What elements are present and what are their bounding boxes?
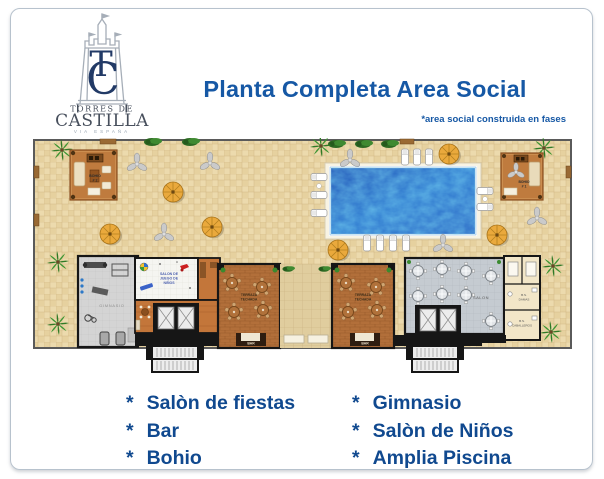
bullet: * xyxy=(126,392,134,415)
feature-item: * Amplia Piscina xyxy=(352,445,513,473)
feature-item: * Bohio xyxy=(126,445,295,473)
feature-label: Salòn de fiestas xyxy=(147,392,295,415)
logo-line3: VIA ESPAÑA xyxy=(74,128,130,134)
damas-label-2: DAMAS xyxy=(519,297,530,301)
bohio1-label: BOHIO xyxy=(518,180,529,184)
bar-right-label: BAR xyxy=(361,342,369,346)
elevator-core-right xyxy=(415,305,461,335)
bullet: * xyxy=(126,420,134,443)
terraza-right-label-2: TECHADA xyxy=(355,297,372,301)
terraza-left-label-1: TERRAZA xyxy=(241,293,258,297)
feature-list-right: * Gimnasio * Salòn de Niños * Amplia Pis… xyxy=(352,390,513,473)
feature-label: Bar xyxy=(147,420,180,443)
logo-monogram-t: T xyxy=(89,45,112,85)
logo: C T TORRES DE CASTILLA VIA ESPAÑA xyxy=(40,12,165,136)
bohio-1: BOHIO # 1 xyxy=(501,153,543,200)
gym-room: GIMNASIO xyxy=(78,256,138,347)
walkway xyxy=(280,264,332,348)
feature-label: Gimnasio xyxy=(373,392,462,415)
gym-label: GIMNASIO xyxy=(99,304,124,308)
feature-item: * Salòn de fiestas xyxy=(126,390,295,418)
pantry-room xyxy=(198,258,220,300)
kids-room: SALON DE JUEGO DE NIÑOS xyxy=(135,258,198,300)
feature-label: Bohio xyxy=(147,447,202,470)
caballeros-label-2: CABALLEROS xyxy=(512,323,532,327)
bullet: * xyxy=(126,447,134,470)
bohio2-label: BOHIO xyxy=(89,174,101,178)
feature-item: * Gimnasio xyxy=(352,390,513,418)
stairs-left xyxy=(152,346,198,372)
feature-item: * Bar xyxy=(126,418,295,446)
bathrooms: B.S. DAMAS B.S. CABALLEROS xyxy=(504,256,540,340)
floor-plan: BOHIO # 2 BOHIO # 1 xyxy=(32,138,574,378)
bullet: * xyxy=(352,447,360,470)
construction-note: *area social construida en fases xyxy=(421,114,566,125)
bar-left-label: BAR xyxy=(247,342,255,346)
terraza-left-label-2: TECHADA xyxy=(241,297,258,301)
damas-label-1: B.S. xyxy=(521,293,527,297)
feature-item: * Salòn de Niños xyxy=(352,418,513,446)
feature-label: Amplia Piscina xyxy=(373,447,512,470)
terraza-left: BAR TERRAZA TECHADA xyxy=(218,264,280,348)
kids-label-1: SALON DE xyxy=(160,272,179,276)
wall-band-right xyxy=(394,335,482,346)
bullet: * xyxy=(352,420,360,443)
terraza-right: BAR TERRAZA TECHADA xyxy=(332,264,394,348)
logo-line2: CASTILLA xyxy=(55,111,149,131)
bohio2-label-2: # 2 xyxy=(93,179,98,183)
wall-band-left xyxy=(135,333,225,346)
bullet: * xyxy=(352,392,360,415)
kids-label-2: JUEGO DE xyxy=(160,277,179,281)
feature-label: Salòn de Niños xyxy=(373,420,514,443)
page-title: Planta Completa Area Social xyxy=(150,76,580,103)
feature-list-left: * Salòn de fiestas * Bar * Bohio xyxy=(126,390,295,473)
caballeros-label-1: B.S. xyxy=(519,319,525,323)
stairs-right xyxy=(412,346,458,372)
kids-label-3: NIÑOS xyxy=(163,280,175,285)
bohio1-label-2: # 1 xyxy=(522,185,527,189)
wall-stub xyxy=(480,335,506,343)
elevator-core-left xyxy=(153,303,199,333)
bohio-2: BOHIO # 2 xyxy=(70,150,117,200)
swimming-pool xyxy=(325,163,481,239)
terraza-right-label-1: TERRAZA xyxy=(355,293,372,297)
salon-label: SALON xyxy=(473,295,489,300)
